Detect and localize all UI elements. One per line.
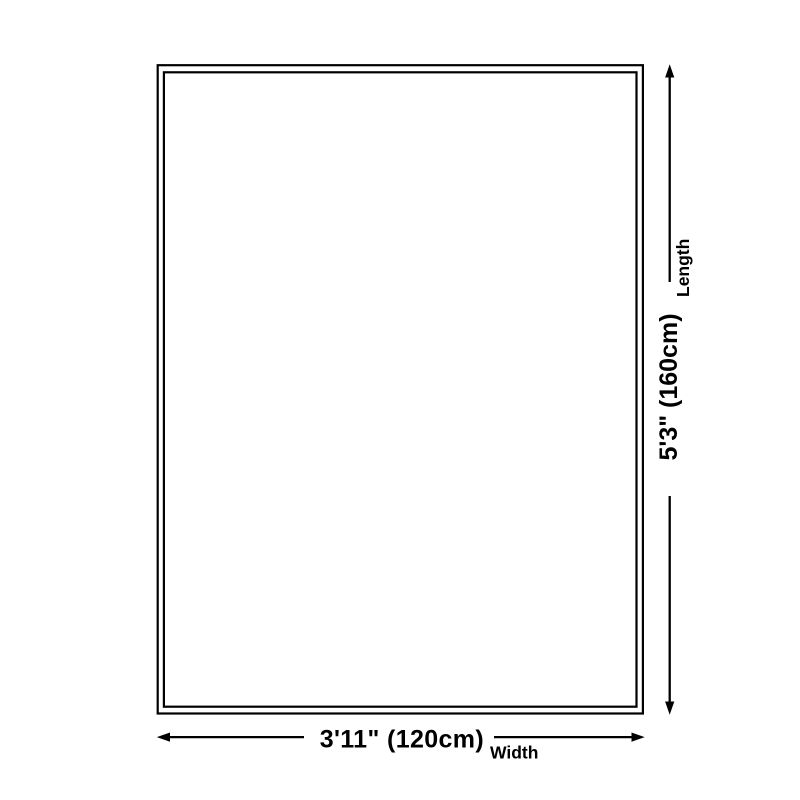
svg-text:3'11" (120cm): 3'11" (120cm)	[320, 726, 484, 754]
svg-text:Width: Width	[490, 743, 538, 763]
svg-text:Length: Length	[673, 239, 693, 297]
svg-text:5'3" (160cm): 5'3" (160cm)	[655, 313, 683, 460]
